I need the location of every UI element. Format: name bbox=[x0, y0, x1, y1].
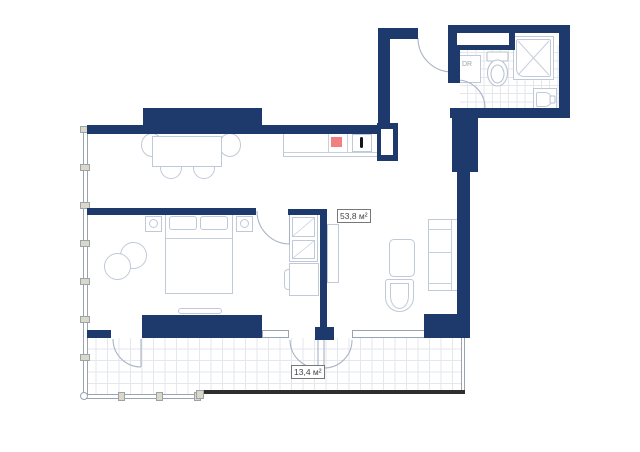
bathroom-sink-basin bbox=[536, 92, 552, 107]
right-corner-block bbox=[424, 314, 470, 338]
right-wall bbox=[457, 170, 470, 316]
entrance-top-wall bbox=[378, 28, 418, 39]
nightstand-lamp bbox=[240, 219, 249, 228]
dining-chair bbox=[219, 133, 241, 157]
sofa-back-line bbox=[451, 220, 452, 290]
facade-mullion bbox=[80, 316, 90, 323]
kitchen-counter-edge bbox=[284, 152, 377, 153]
stove-icon bbox=[331, 137, 342, 147]
floor-plan: DR 53,8 м² 13,4 м² bbox=[0, 0, 640, 452]
bed-pillow bbox=[200, 216, 228, 230]
bathroom-shelf-niche bbox=[457, 33, 509, 45]
wardrobe-section bbox=[292, 217, 315, 237]
balcony-area-label: 13,4 м² bbox=[291, 365, 325, 379]
entrance-door-arc bbox=[418, 38, 452, 72]
tv-on-stand bbox=[178, 308, 222, 314]
pouf bbox=[104, 253, 131, 280]
faucet-icon bbox=[360, 137, 363, 148]
facade-mullion bbox=[80, 278, 90, 285]
balcony-railing bbox=[202, 390, 465, 394]
facade-mullion bbox=[80, 240, 90, 247]
coffee-table bbox=[389, 239, 415, 277]
divider-wall bbox=[320, 209, 327, 329]
bedroom-top-wall bbox=[87, 208, 256, 215]
dryer-label: DR bbox=[462, 61, 472, 69]
nightstand-lamp bbox=[149, 219, 158, 228]
armchair-seat bbox=[390, 283, 409, 309]
main-area-label: 53,8 м² bbox=[337, 209, 371, 223]
sofa-armrest-line bbox=[429, 229, 451, 230]
wardrobe-section bbox=[292, 240, 315, 259]
facade-mullion bbox=[118, 392, 125, 401]
shower-tray bbox=[516, 39, 551, 77]
bed-pillow bbox=[169, 216, 197, 230]
balcony-right-edge bbox=[461, 338, 465, 392]
facade-mullion bbox=[80, 164, 90, 171]
railing-end-post bbox=[196, 390, 204, 399]
bed-blanket-line bbox=[166, 238, 232, 239]
balcony-floor bbox=[85, 338, 464, 394]
facade-corner-post bbox=[80, 392, 88, 400]
dining-table bbox=[152, 136, 222, 167]
shelf-unit bbox=[327, 224, 339, 283]
bottom-facade-glazing bbox=[84, 394, 202, 399]
living-window-sill bbox=[352, 330, 425, 338]
desk bbox=[289, 263, 319, 296]
right-pier bbox=[452, 112, 478, 172]
bathroom-right-wall bbox=[559, 25, 570, 118]
bedroom-bottom-stub bbox=[87, 330, 111, 338]
facade-mullion bbox=[156, 392, 163, 401]
sofa-cushion-line bbox=[429, 252, 451, 253]
hallway-left-wall bbox=[378, 28, 390, 126]
facade-mullion bbox=[80, 354, 90, 361]
kitchen-duct-niche bbox=[381, 129, 393, 155]
divider-wall-base bbox=[315, 327, 334, 340]
kitchen-counter-divider bbox=[328, 132, 329, 152]
bedroom-bottom-bar bbox=[142, 315, 262, 338]
sofa-armrest-line bbox=[429, 283, 451, 284]
bedroom-window-sill bbox=[262, 330, 289, 338]
kitchen-counter-divider bbox=[347, 132, 348, 152]
top-wall-pier bbox=[143, 108, 262, 127]
